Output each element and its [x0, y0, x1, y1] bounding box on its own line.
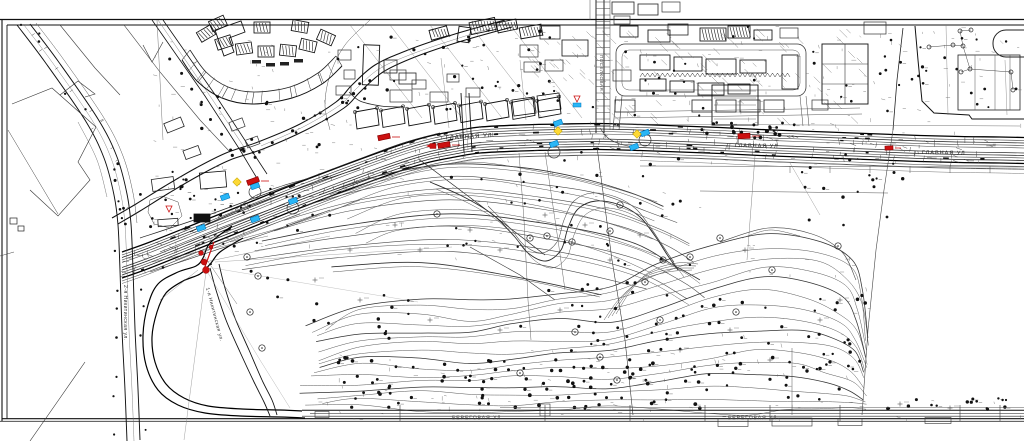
svg-text:БЕРЕГОВАЯ УЛ: БЕРЕГОВАЯ УЛ: [728, 416, 777, 422]
svg-text:ГЛАВНАЯ УЛ: ГЛАВНАЯ УЛ: [922, 150, 966, 157]
svg-text:2-я Никитинская ул.: 2-я Никитинская ул.: [122, 285, 128, 341]
svg-text:ПОСЕЛКОВАЯ: ПОСЕЛКОВАЯ: [599, 55, 604, 91]
svg-text:ГЛАВНАЯ УЛ: ГЛАВНАЯ УЛ: [735, 143, 779, 150]
svg-text:БЕРЕГОВАЯ УЛ: БЕРЕГОВАЯ УЛ: [452, 416, 501, 422]
